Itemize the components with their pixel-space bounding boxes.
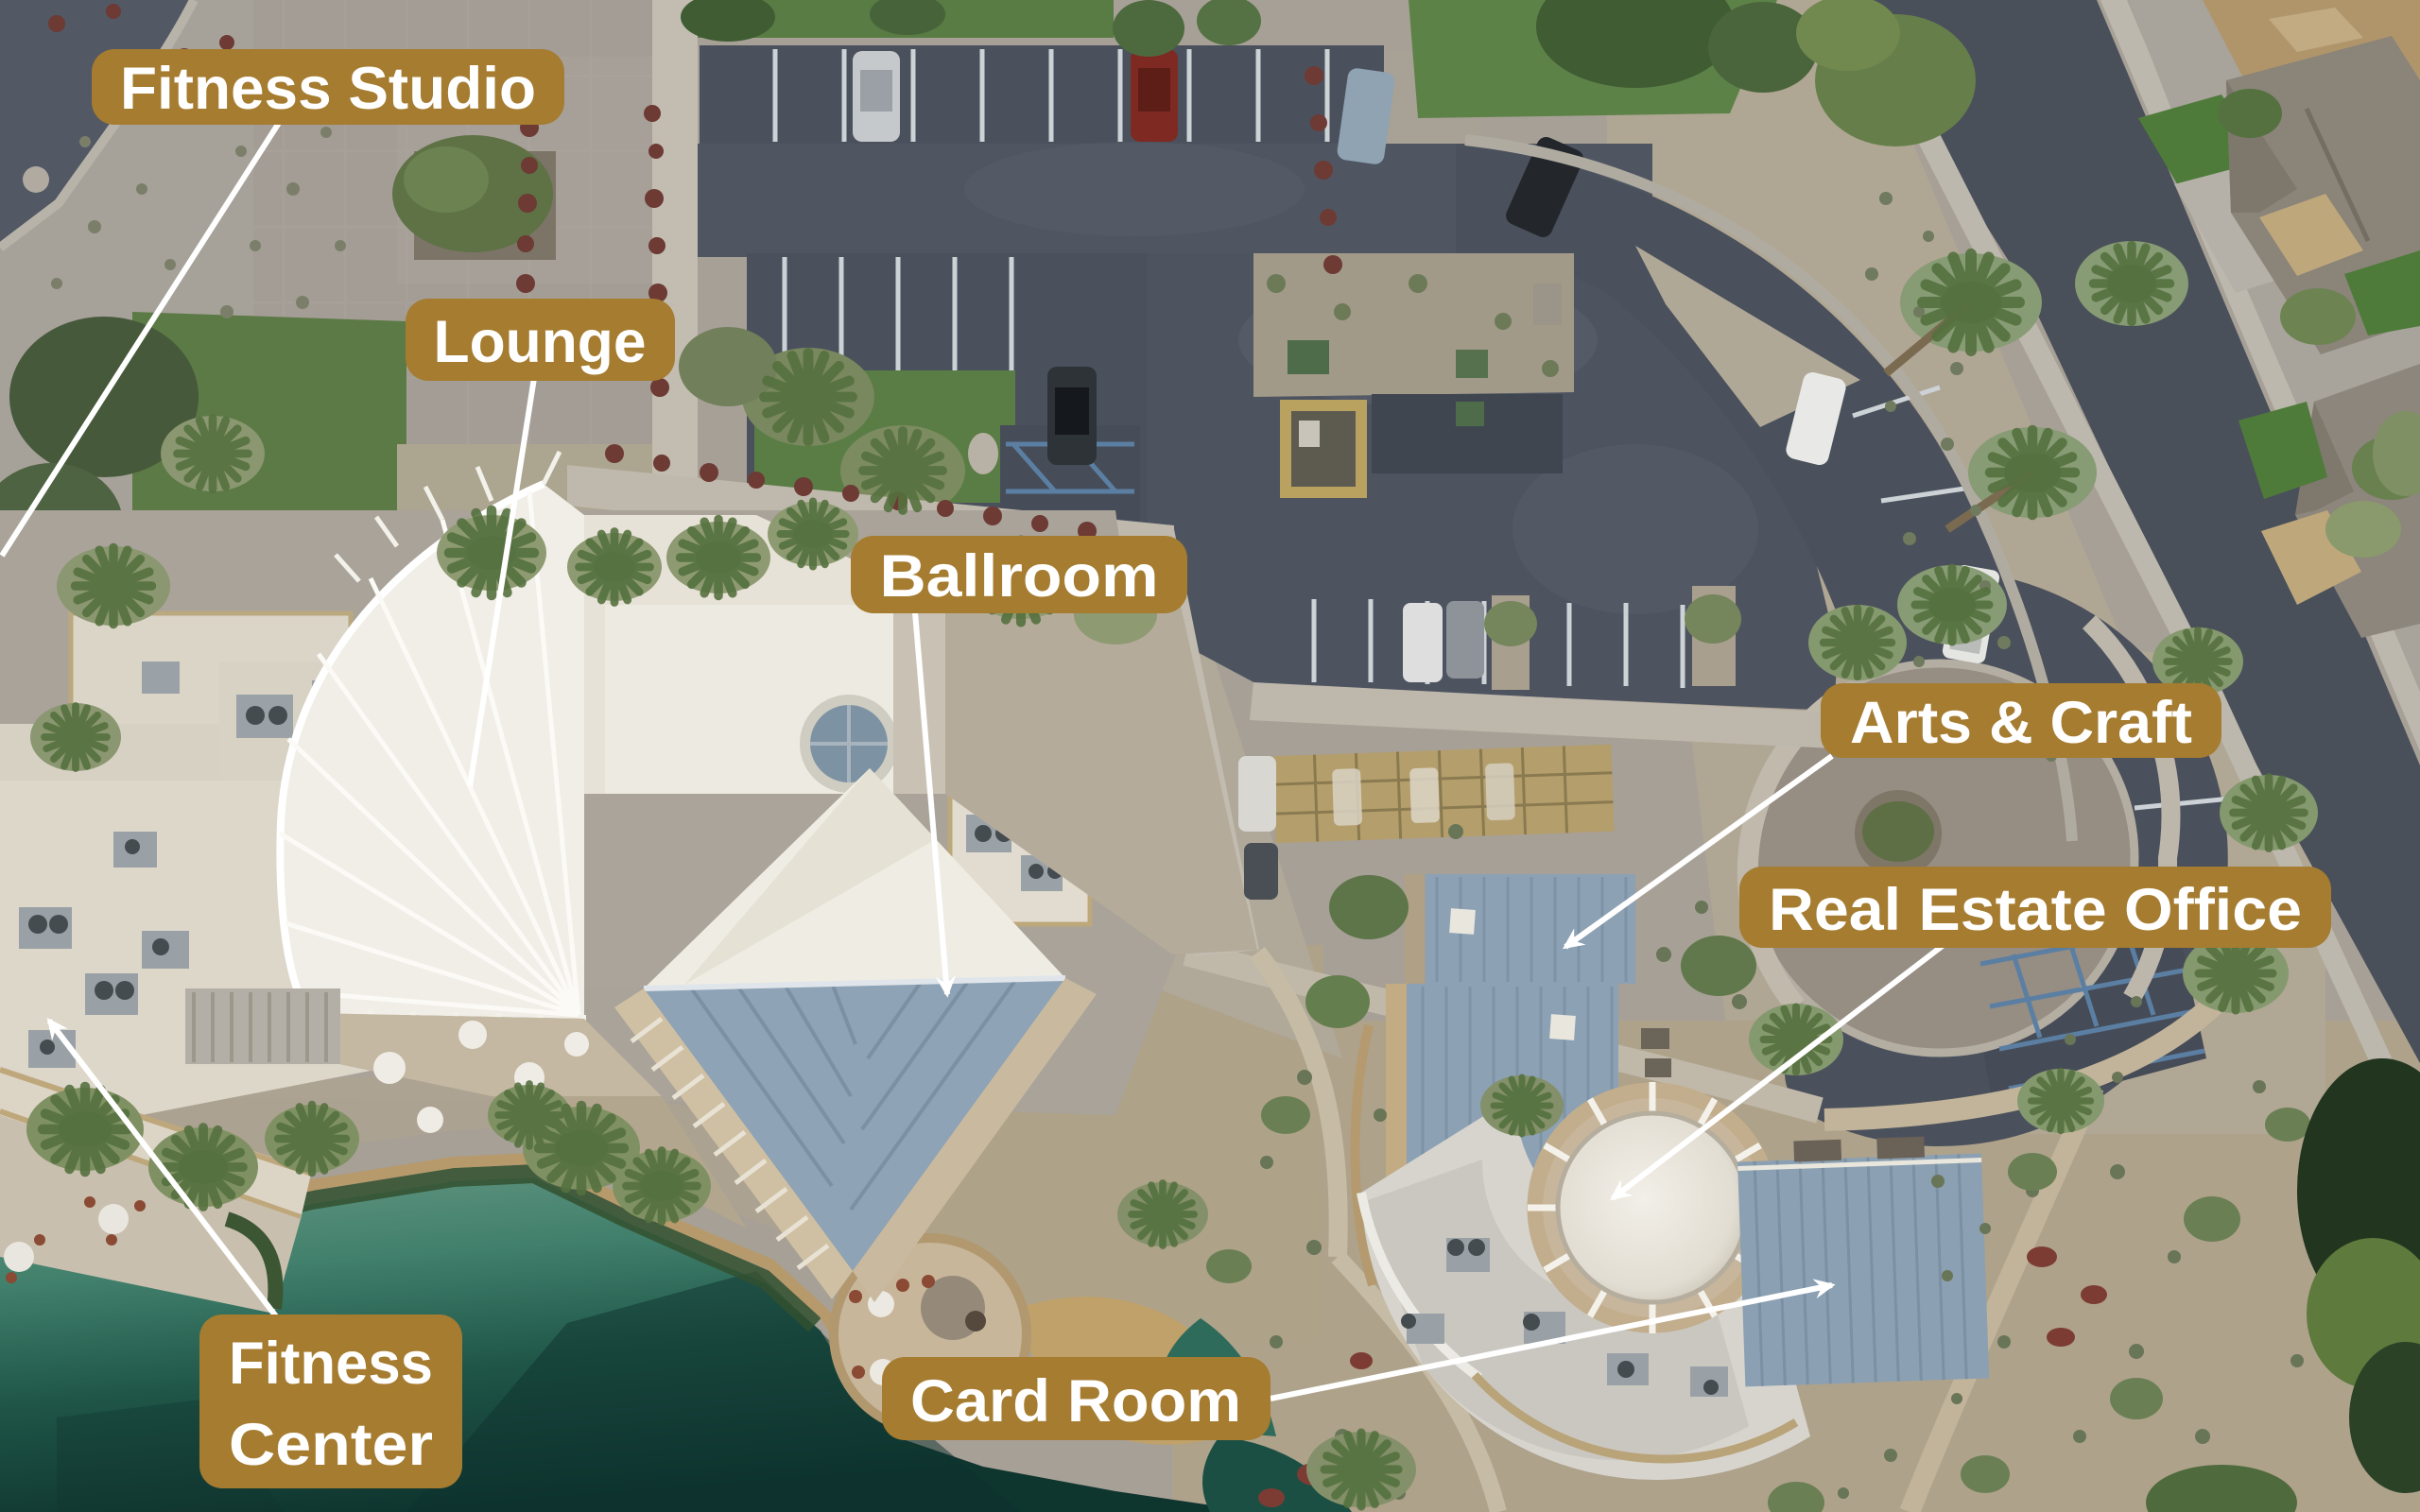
svg-text:Fitness Studio: Fitness Studio <box>120 56 536 122</box>
svg-text:Arts & Craft: Arts & Craft <box>1850 690 2192 756</box>
svg-text:Real Estate Office: Real Estate Office <box>1769 877 2302 943</box>
svg-text:Center: Center <box>229 1412 433 1478</box>
svg-text:Lounge: Lounge <box>434 309 647 375</box>
svg-text:Card Room: Card Room <box>910 1368 1241 1435</box>
svg-text:Ballroom: Ballroom <box>880 543 1159 610</box>
svg-text:Fitness: Fitness <box>229 1331 433 1397</box>
